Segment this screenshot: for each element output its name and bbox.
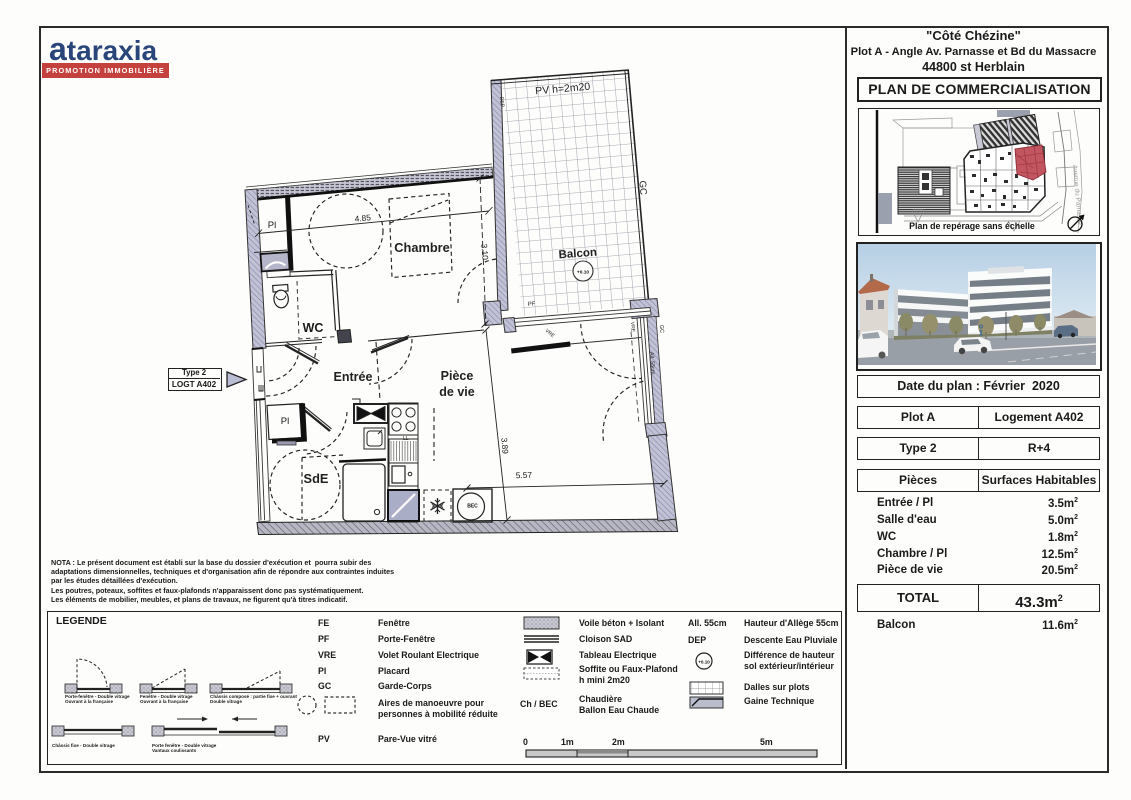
svg-text:Plan de repérage sans échelle: Plan de repérage sans échelle <box>909 221 1035 231</box>
svg-text:VRE: VRE <box>629 322 636 333</box>
svg-text:Chambre: Chambre <box>394 240 449 255</box>
svg-text:Pièce: Pièce <box>441 369 474 383</box>
svg-text:5.57: 5.57 <box>516 470 533 481</box>
svg-text:SdE: SdE <box>304 471 329 486</box>
svg-text:+0.10: +0.10 <box>698 659 710 664</box>
svg-text:Pl: Pl <box>268 220 276 231</box>
svg-text:BEC: BEC <box>467 504 478 510</box>
svg-text:4.85: 4.85 <box>354 212 371 224</box>
svg-text:PF: PF <box>528 301 536 308</box>
svg-text:GC: GC <box>637 180 649 195</box>
svg-text:DEP: DEP <box>498 97 505 109</box>
svg-text:+0.10: +0.10 <box>577 270 589 276</box>
svg-text:Entrée: Entrée <box>334 370 373 384</box>
svg-text:3.10: 3.10 <box>479 243 490 260</box>
svg-text:VRE: VRE <box>544 328 556 340</box>
svg-text:GC: GC <box>658 325 665 334</box>
svg-text:Pl: Pl <box>281 416 289 427</box>
svg-text:LL: LL <box>403 436 409 442</box>
svg-text:WC: WC <box>303 321 324 335</box>
svg-text:3.89: 3.89 <box>499 437 510 454</box>
svg-text:de vie: de vie <box>439 385 474 399</box>
